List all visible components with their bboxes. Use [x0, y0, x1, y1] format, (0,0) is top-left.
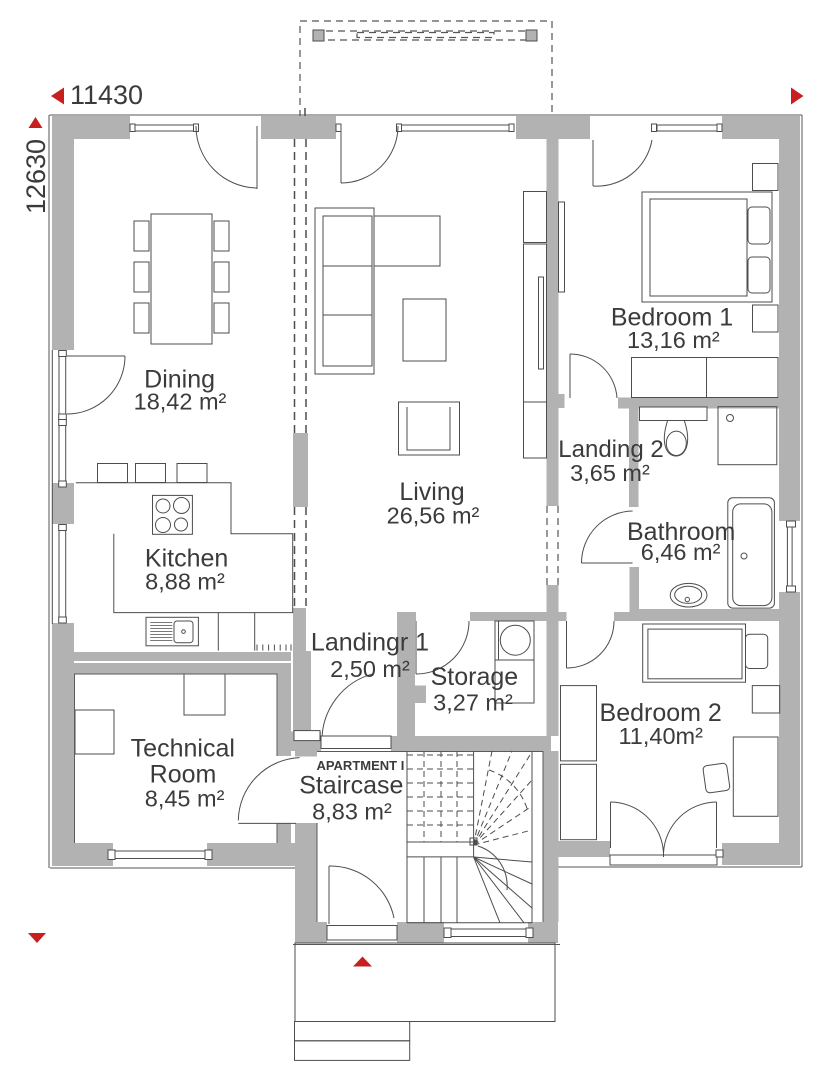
- svg-text:11,40m²: 11,40m²: [618, 723, 703, 749]
- svg-text:13,16 m²: 13,16 m²: [627, 327, 720, 353]
- svg-text:6,46 m²: 6,46 m²: [641, 539, 721, 565]
- svg-text:3,65 m²: 3,65 m²: [570, 460, 650, 486]
- svg-text:12630: 12630: [21, 139, 51, 214]
- svg-text:Technical: Technical: [131, 735, 235, 763]
- svg-text:Landing 2: Landing 2: [558, 436, 663, 463]
- svg-text:8,45 m²: 8,45 m²: [145, 786, 225, 812]
- svg-text:2,50 m²: 2,50 m²: [330, 656, 410, 682]
- svg-text:Staircase: Staircase: [299, 772, 403, 800]
- svg-text:11430: 11430: [70, 80, 143, 110]
- svg-text:8,83 m²: 8,83 m²: [312, 799, 392, 825]
- svg-text:Storage: Storage: [431, 663, 519, 691]
- svg-text:18,42 m²: 18,42 m²: [134, 389, 227, 415]
- svg-text:3,27 m²: 3,27 m²: [433, 690, 513, 716]
- svg-text:Landingr 1: Landingr 1: [311, 628, 429, 656]
- svg-text:8,88 m²: 8,88 m²: [145, 569, 225, 595]
- svg-text:Room: Room: [150, 760, 217, 788]
- svg-text:26,56 m²: 26,56 m²: [387, 503, 480, 529]
